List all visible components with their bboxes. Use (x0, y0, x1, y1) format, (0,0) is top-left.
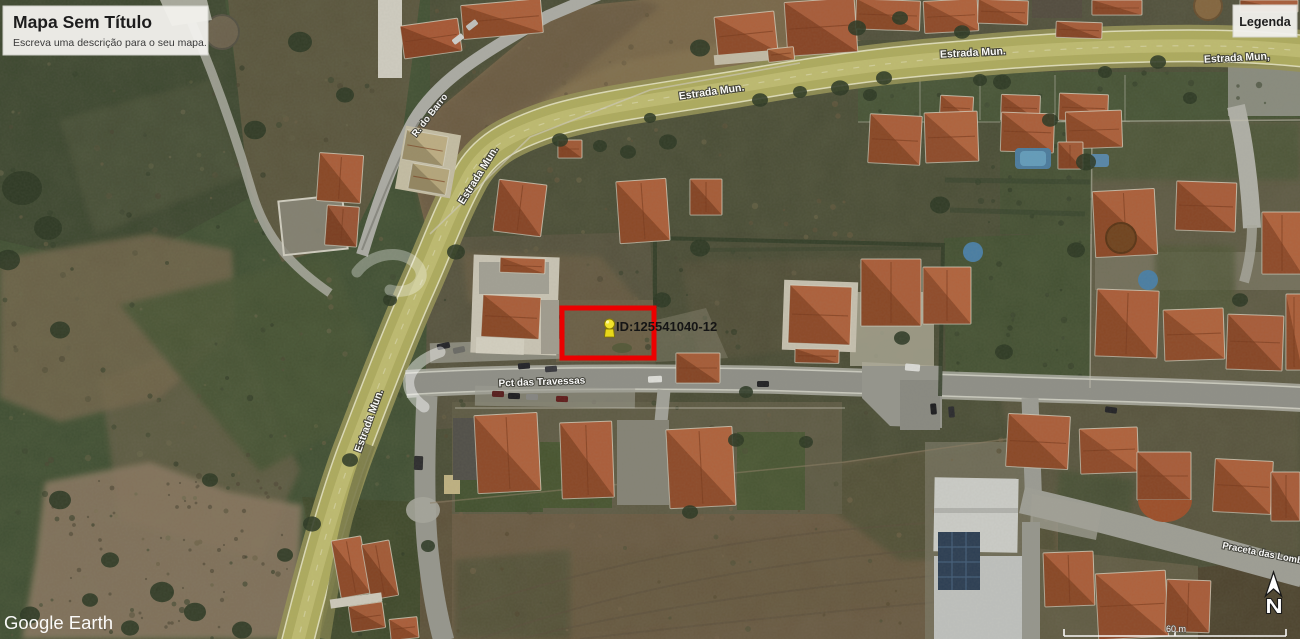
svg-text:ID:125541040-12: ID:125541040-12 (616, 319, 717, 334)
svg-text:Escreva uma descrição para o s: Escreva uma descrição para o seu mapa. (13, 37, 207, 49)
svg-text:Google Earth: Google Earth (4, 612, 113, 633)
svg-text:Legenda: Legenda (1239, 15, 1291, 29)
svg-text:60 m: 60 m (1166, 624, 1186, 634)
svg-text:Mapa Sem Título: Mapa Sem Título (13, 12, 152, 32)
